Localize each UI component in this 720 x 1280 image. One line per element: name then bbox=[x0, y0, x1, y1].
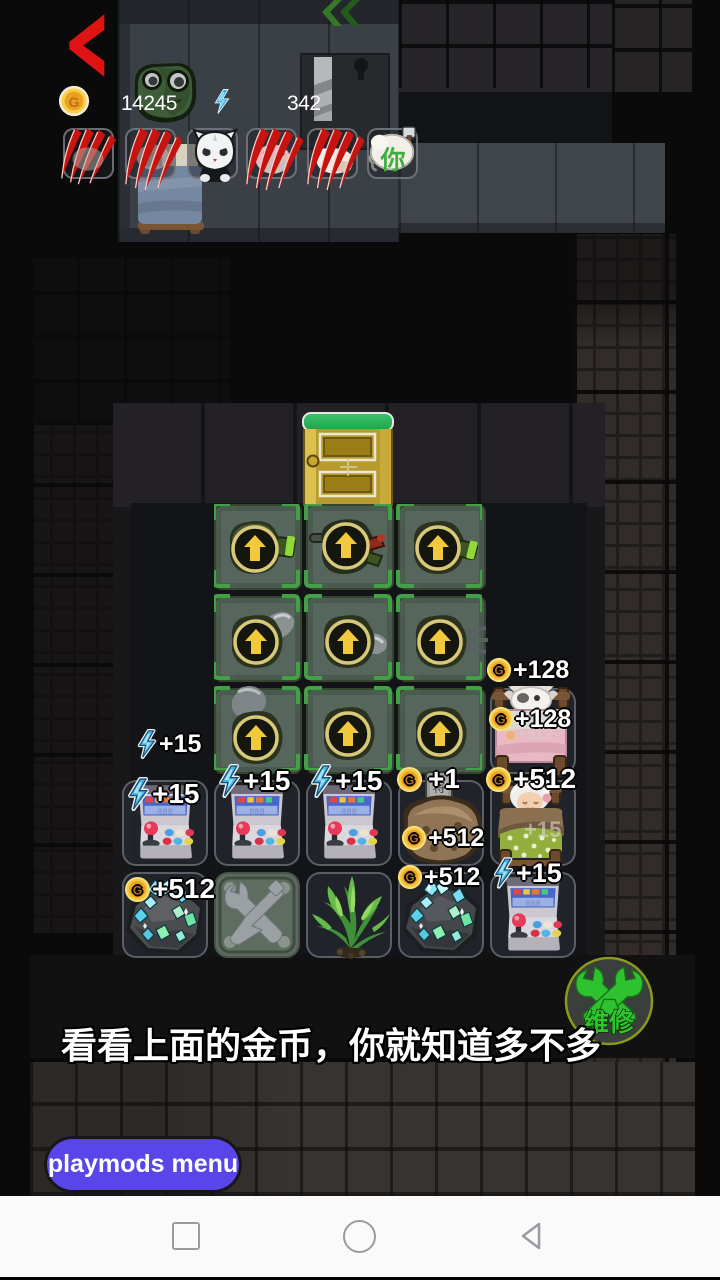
svg-text:G: G bbox=[68, 95, 79, 111]
svg-text:G: G bbox=[494, 773, 503, 787]
svg-text:G: G bbox=[409, 833, 418, 846]
svg-text:G: G bbox=[405, 773, 414, 787]
svg-text:G: G bbox=[494, 665, 503, 678]
svg-text:你: 你 bbox=[380, 146, 406, 174]
svg-text:888: 888 bbox=[249, 807, 265, 817]
svg-text:G: G bbox=[405, 872, 414, 885]
svg-text:G: G bbox=[133, 883, 142, 897]
svg-text:888: 888 bbox=[341, 807, 357, 817]
svg-text:G: G bbox=[496, 714, 505, 727]
svg-text:888: 888 bbox=[525, 899, 541, 909]
